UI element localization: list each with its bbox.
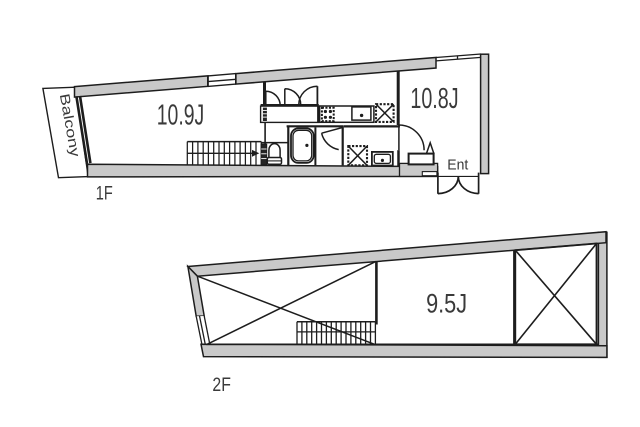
svg-text:1F: 1F bbox=[96, 184, 113, 205]
svg-text:10.8J: 10.8J bbox=[410, 83, 458, 115]
svg-text:10.9J: 10.9J bbox=[157, 100, 205, 132]
svg-text:Ent: Ent bbox=[447, 156, 469, 173]
svg-text:9.5J: 9.5J bbox=[426, 289, 467, 319]
svg-text:2F: 2F bbox=[212, 375, 231, 396]
